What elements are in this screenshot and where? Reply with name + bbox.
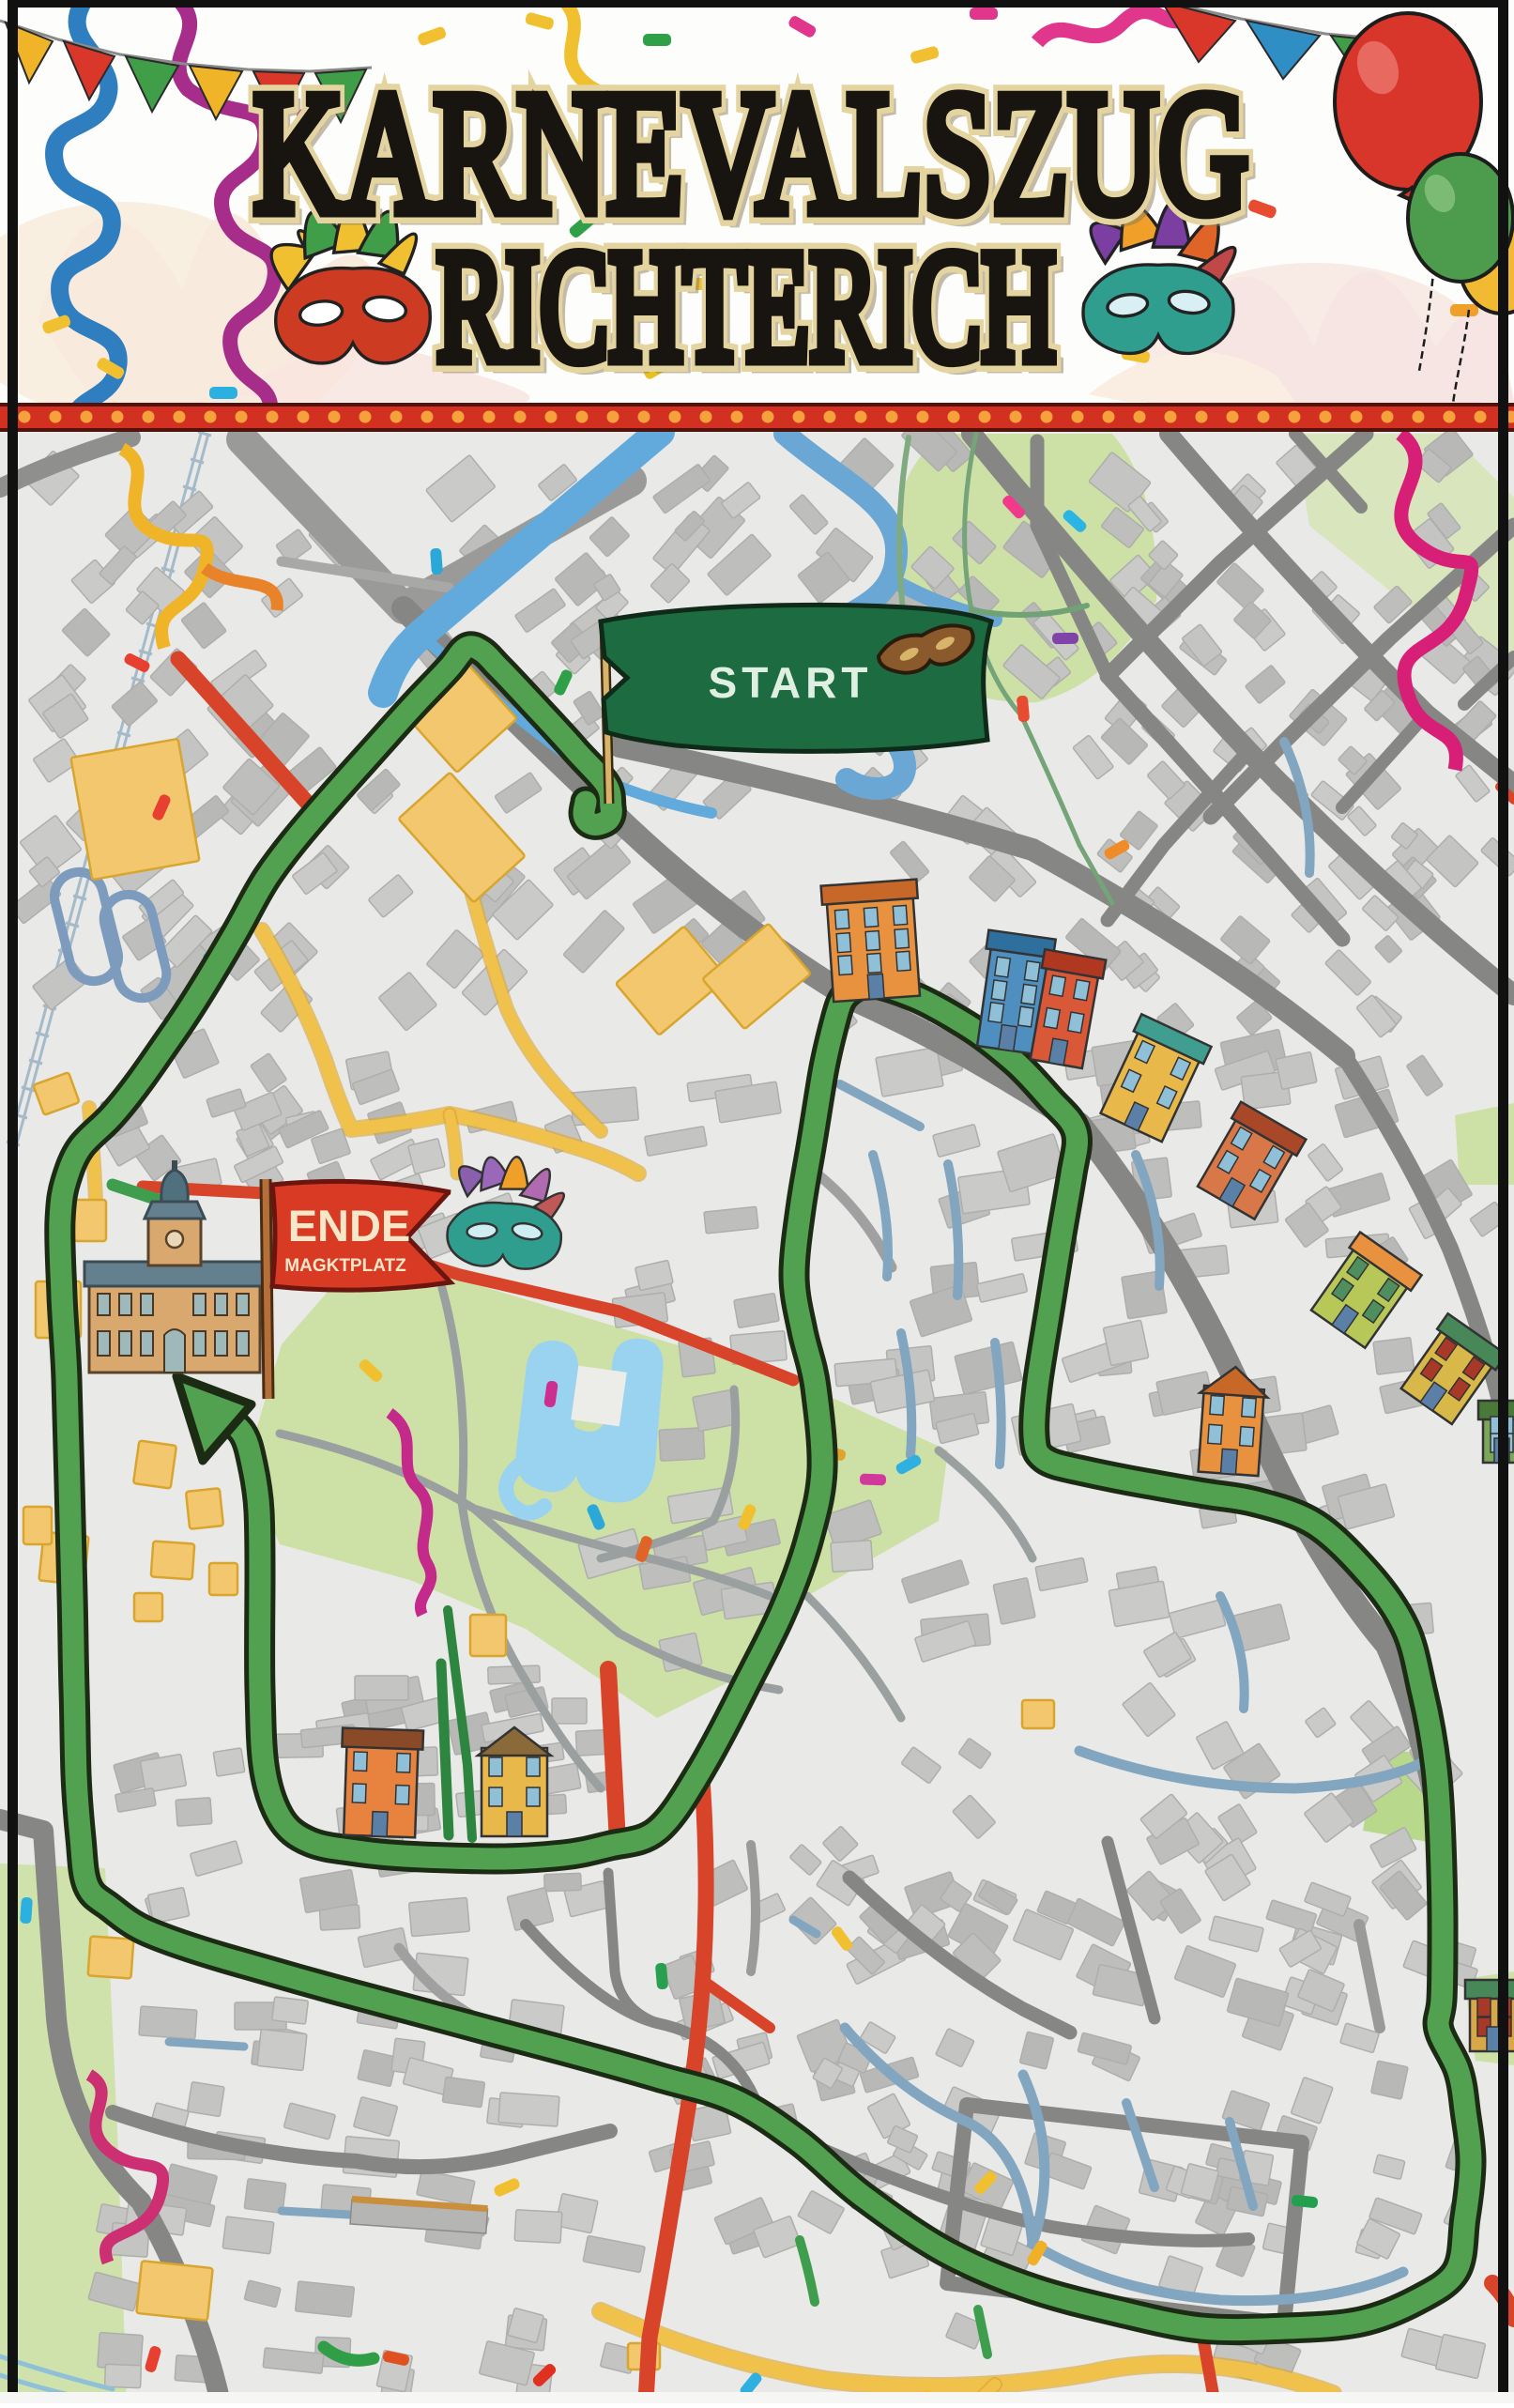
svg-text:MAGKTPLATZ: MAGKTPLATZ xyxy=(284,1256,406,1276)
svg-text:RICHTERICH: RICHTERICH xyxy=(436,218,1056,394)
svg-text:START: START xyxy=(709,658,873,707)
svg-text:ENDE: ENDE xyxy=(288,1201,411,1250)
